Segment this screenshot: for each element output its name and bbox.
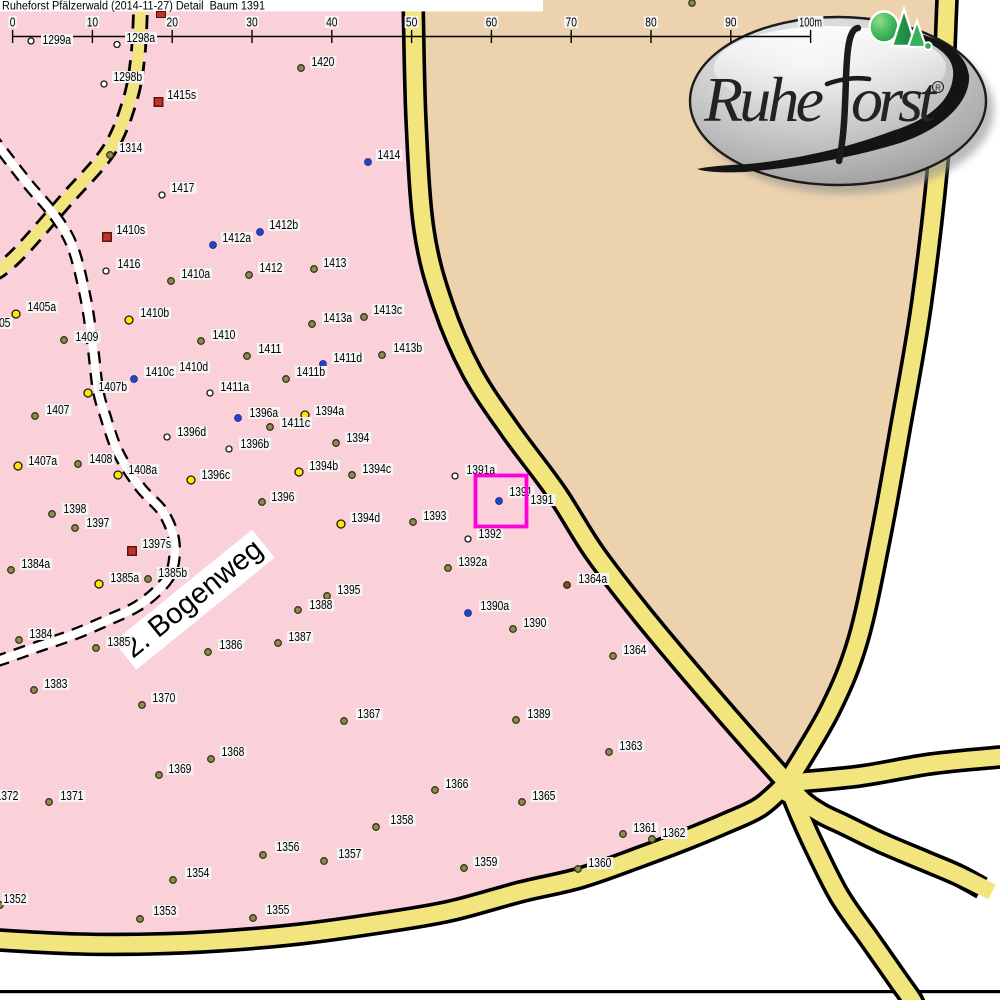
svg-text:1408a: 1408a [129,463,158,477]
svg-text:1407: 1407 [47,403,70,417]
svg-text:1396d: 1396d [178,425,207,439]
svg-text:1396b: 1396b [241,437,270,451]
svg-text:1410s: 1410s [117,223,146,237]
svg-text:1358: 1358 [391,813,414,827]
svg-text:50: 50 [406,15,417,29]
svg-text:1362: 1362 [663,826,686,840]
svg-text:1397: 1397 [87,516,110,530]
svg-text:1390: 1390 [524,616,547,630]
svg-text:1410b: 1410b [141,306,170,320]
svg-text:1413a: 1413a [324,311,353,325]
svg-text:1367: 1367 [358,707,381,721]
svg-text:1394d: 1394d [352,511,381,525]
svg-text:1390a: 1390a [481,599,510,613]
svg-text:1352: 1352 [4,892,27,906]
svg-text:1396c: 1396c [202,468,231,482]
svg-text:1357: 1357 [339,847,362,861]
svg-text:1416: 1416 [118,257,141,271]
svg-text:1298a: 1298a [127,31,156,45]
svg-text:1364a: 1364a [579,572,608,586]
svg-text:80: 80 [645,15,656,29]
svg-text:1393: 1393 [424,509,447,523]
svg-text:1360: 1360 [589,856,612,870]
svg-text:1411a: 1411a [221,380,250,394]
svg-text:1384: 1384 [30,627,53,641]
svg-text:70: 70 [566,15,577,29]
svg-text:Ruheforst Pfälzerwald (2014-11: Ruheforst Pfälzerwald (2014-11-27) Detai… [2,0,265,12]
svg-text:1413c: 1413c [374,303,403,317]
svg-text:1414: 1414 [378,148,401,162]
svg-text:1359: 1359 [475,855,498,869]
svg-text:1389: 1389 [528,707,551,721]
svg-text:1370: 1370 [153,691,176,705]
svg-text:1371: 1371 [61,789,84,803]
svg-text:1394a: 1394a [316,404,345,418]
svg-text:1407b: 1407b [99,380,128,394]
svg-text:1407a: 1407a [29,454,58,468]
svg-text:1405a: 1405a [28,300,57,314]
svg-text:1314: 1314 [120,141,143,155]
svg-text:1356: 1356 [277,840,300,854]
svg-text:1411c: 1411c [282,416,311,430]
svg-text:1415s: 1415s [168,88,197,102]
svg-text:1385b: 1385b [159,566,188,580]
svg-text:1392a: 1392a [459,555,488,569]
svg-text:1385: 1385 [108,635,131,649]
svg-text:1398: 1398 [64,502,87,516]
svg-text:1409: 1409 [76,330,99,344]
svg-text:1361: 1361 [634,821,657,835]
svg-text:1385a: 1385a [111,571,140,585]
svg-text:1410a: 1410a [182,267,211,281]
svg-text:1412a: 1412a [223,231,252,245]
svg-text:0: 0 [10,15,16,29]
svg-text:1410d: 1410d [180,360,209,374]
svg-text:1364: 1364 [624,643,647,657]
svg-text:1394: 1394 [347,431,370,445]
svg-text:40: 40 [326,15,337,29]
svg-text:1411d: 1411d [334,351,363,365]
svg-text:1388: 1388 [310,598,333,612]
svg-text:1394b: 1394b [310,459,339,473]
svg-text:1387: 1387 [289,630,312,644]
svg-text:60: 60 [486,15,497,29]
svg-text:R: R [935,83,941,92]
svg-text:1299a: 1299a [43,33,72,47]
svg-text:1363: 1363 [620,739,643,753]
svg-text:1298b: 1298b [114,70,143,84]
svg-text:10: 10 [87,15,98,29]
svg-text:1353: 1353 [154,904,177,918]
svg-text:1369: 1369 [169,762,192,776]
svg-text:90: 90 [725,15,736,29]
svg-text:1366: 1366 [446,777,469,791]
svg-text:1372: 1372 [0,789,18,803]
svg-text:1411: 1411 [259,342,282,356]
svg-text:20: 20 [167,15,178,29]
svg-text:1410c: 1410c [146,365,175,379]
svg-text:30: 30 [246,15,257,29]
svg-text:1391: 1391 [531,493,554,507]
svg-text:Ruhe: Ruhe [703,64,824,135]
svg-text:1396: 1396 [272,490,295,504]
svg-text:orst: orst [851,64,938,135]
svg-text:1392: 1392 [479,527,502,541]
svg-text:1420: 1420 [312,55,335,69]
svg-text:1391: 1391 [510,485,533,499]
svg-text:1365: 1365 [533,789,556,803]
svg-text:1395: 1395 [338,583,361,597]
svg-text:1383: 1383 [45,677,68,691]
svg-text:1384a: 1384a [22,557,51,571]
svg-text:1417: 1417 [172,181,195,195]
svg-text:1405: 1405 [0,316,10,330]
svg-text:1368: 1368 [222,745,245,759]
svg-text:100m: 100m [799,15,822,29]
svg-text:1397s: 1397s [143,537,172,551]
svg-text:1396a: 1396a [250,406,279,420]
svg-text:1355: 1355 [267,903,290,917]
svg-text:1410: 1410 [213,328,236,342]
svg-text:1413: 1413 [324,256,347,270]
svg-text:1412: 1412 [260,261,283,275]
svg-text:1412b: 1412b [270,218,299,232]
svg-text:1411b: 1411b [297,365,326,379]
svg-text:1354: 1354 [187,866,210,880]
svg-text:1394c: 1394c [363,462,392,476]
svg-text:1386: 1386 [220,638,243,652]
svg-text:1408: 1408 [90,452,113,466]
svg-text:1413b: 1413b [394,341,423,355]
